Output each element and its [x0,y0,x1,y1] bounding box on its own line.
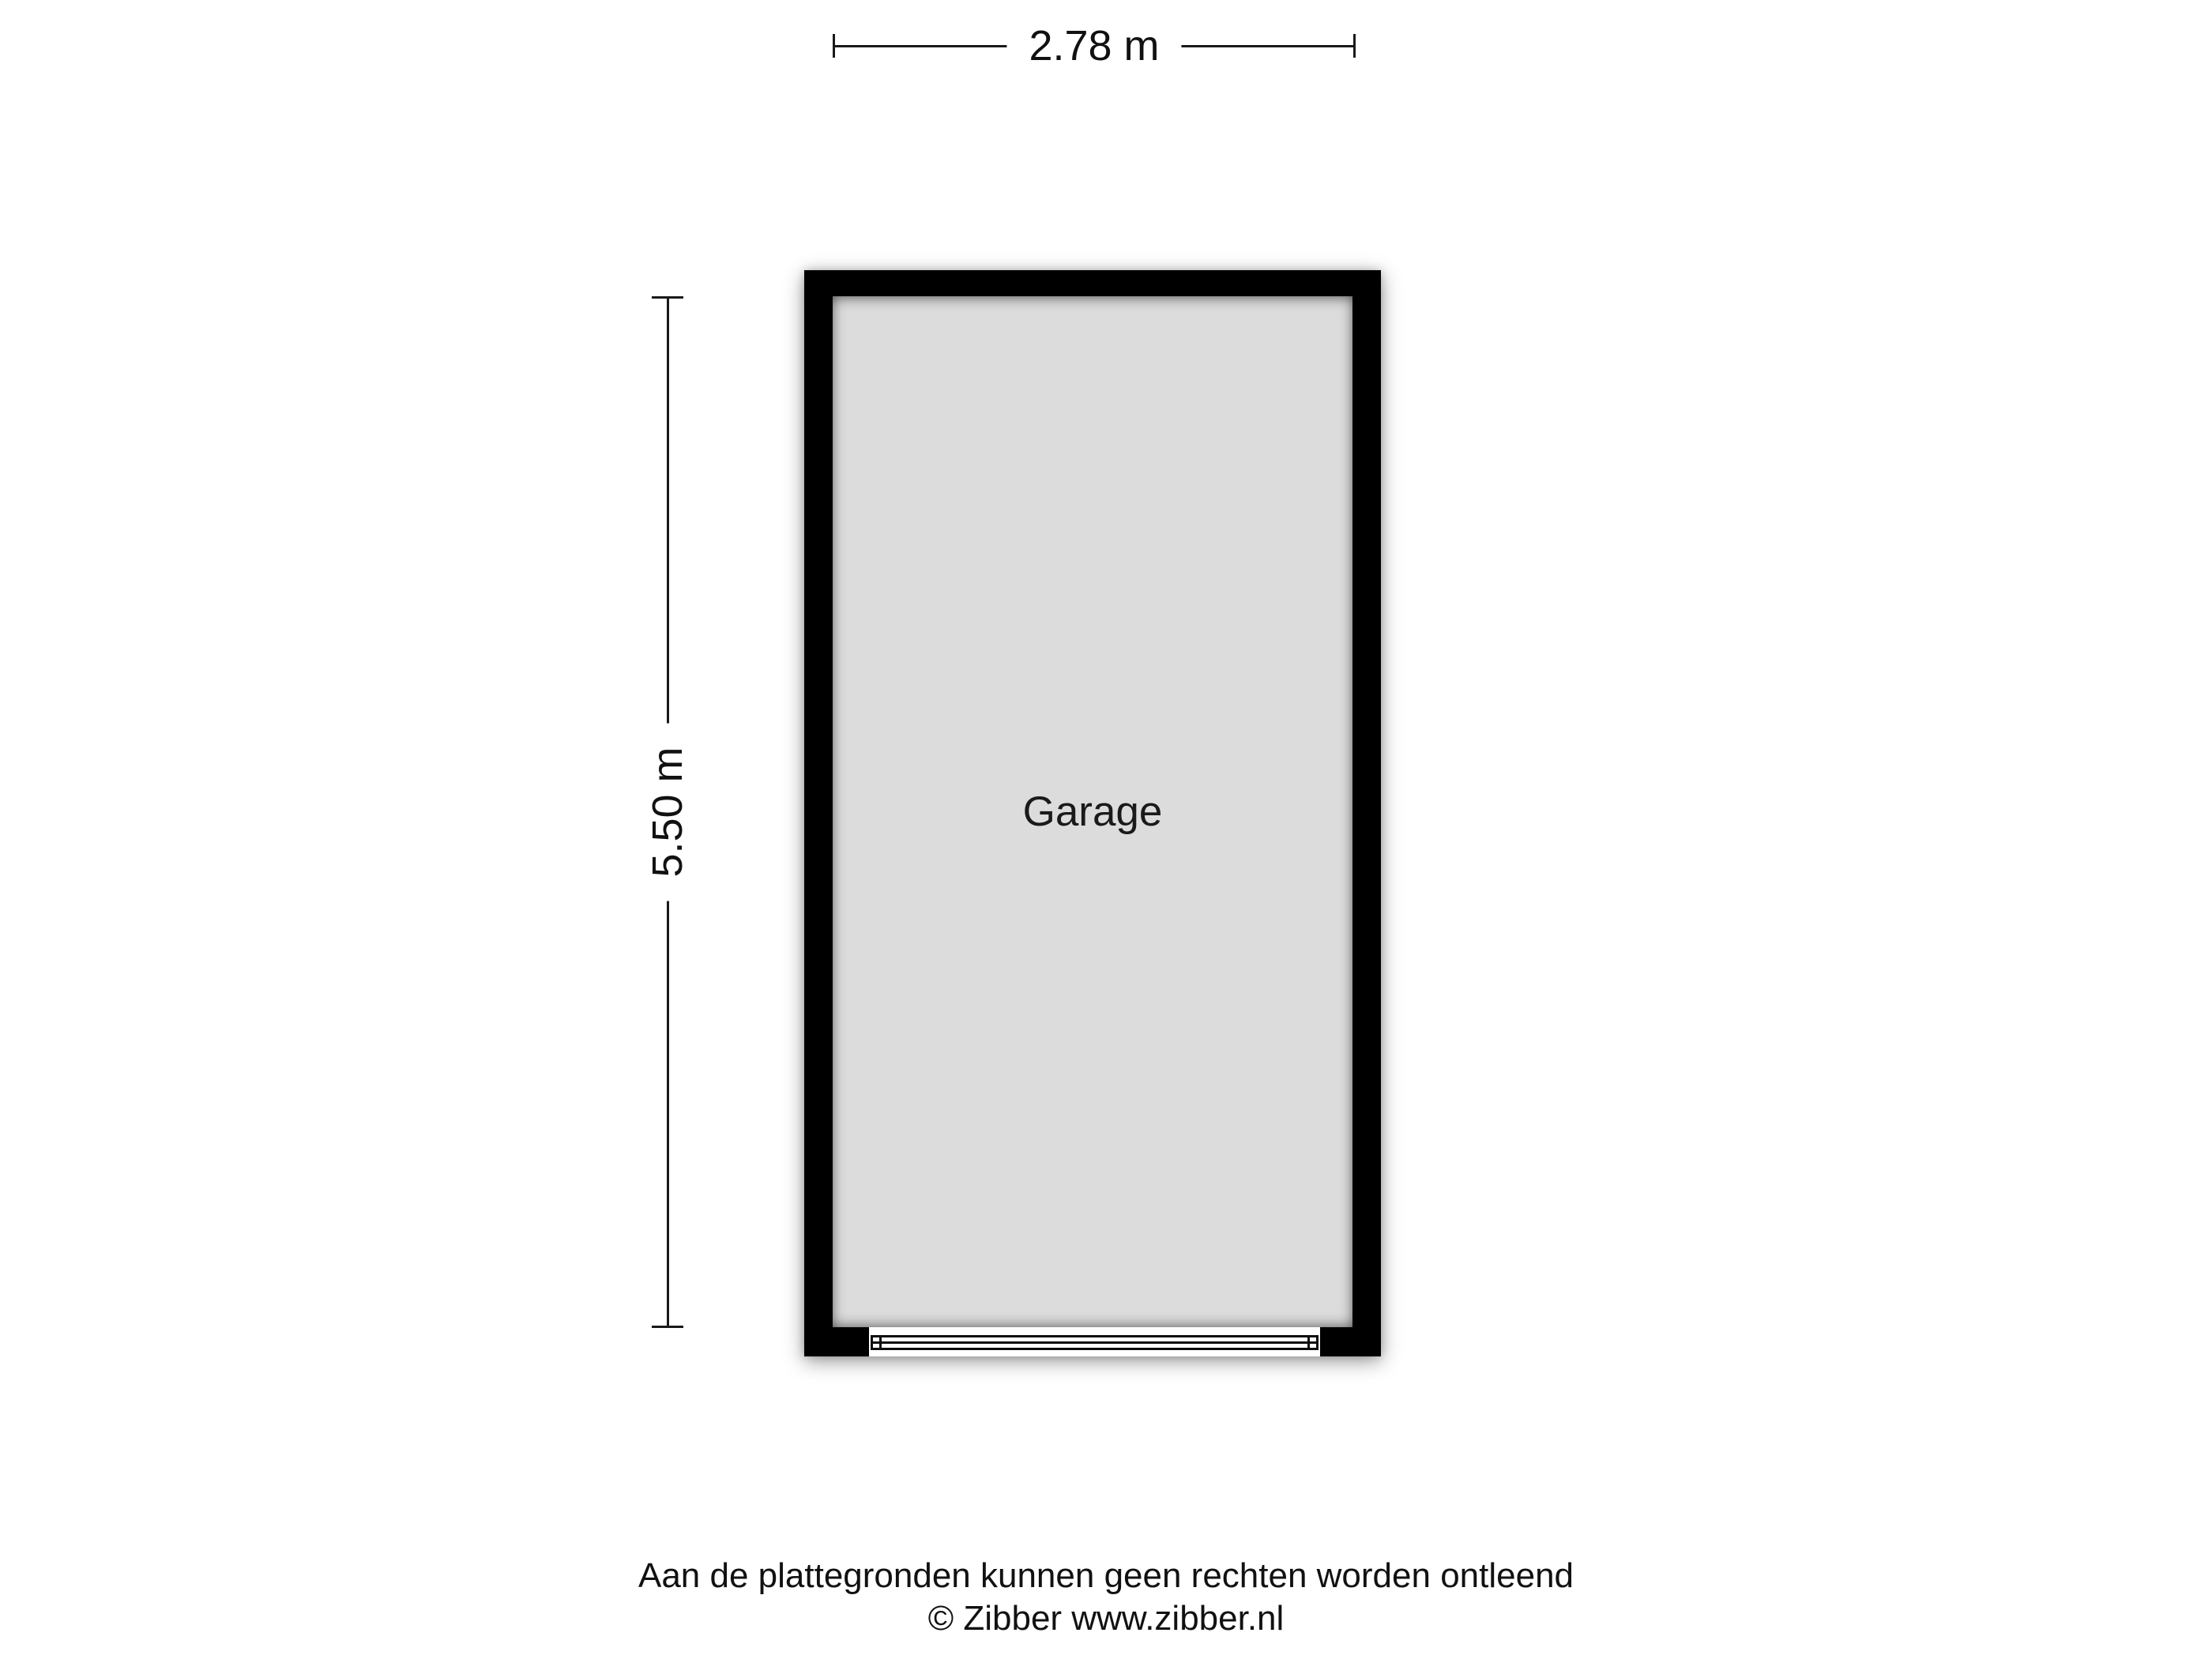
footer-copyright: © Zibber www.zibber.nl [0,1597,2212,1640]
floorplan-canvas: 2.78 m 5.50 m Garage Aan de plattegronde… [0,0,2212,1659]
garage-door-symbol [871,1335,1319,1350]
room-label: Garage [1023,788,1163,836]
height-dimension-label: 5.50 m [643,723,692,901]
height-dimension-tick-bottom [652,1326,683,1328]
garage-door-opening [869,1327,1320,1356]
garage-door-end-cap-right [1307,1337,1310,1348]
footer-disclaimer: Aan de plattegronden kunnen geen rechten… [0,1555,2212,1597]
garage-door-end-cap-left [879,1337,882,1348]
height-dimension-tick-top [652,296,683,299]
width-dimension: 2.78 m [833,34,1356,58]
width-dimension-tick-left [833,34,835,58]
height-dimension: 5.50 m [652,296,683,1328]
room-garage: Garage [804,270,1381,1356]
width-dimension-label: 2.78 m [1006,21,1181,70]
garage-door-middle-line [873,1341,1316,1344]
width-dimension-tick-right [1353,34,1356,58]
garage-floor: Garage [833,296,1352,1327]
footer: Aan de plattegronden kunnen geen rechten… [0,1555,2212,1640]
